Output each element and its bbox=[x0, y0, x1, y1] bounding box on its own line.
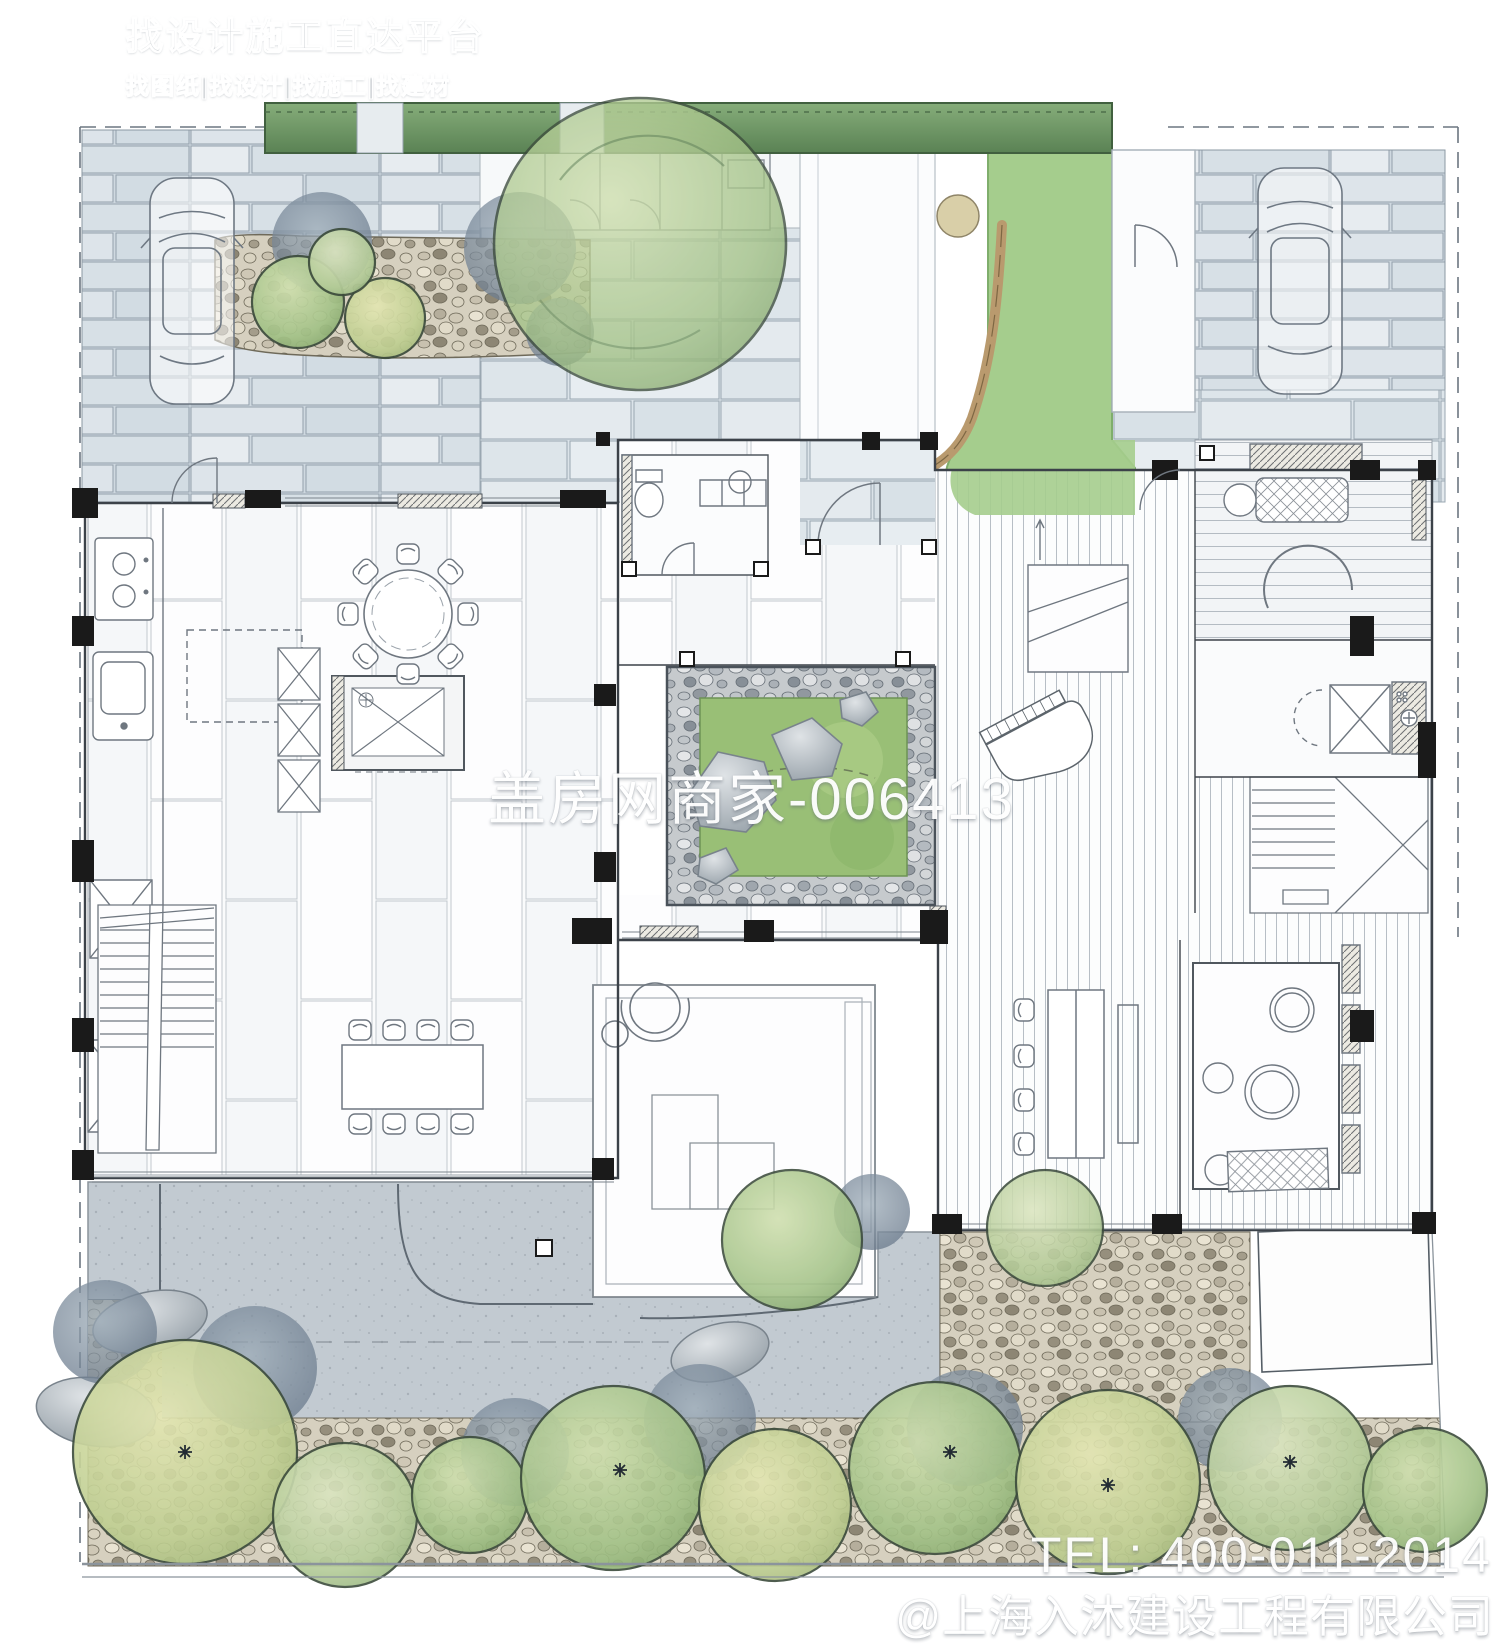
inner-courtyard bbox=[667, 667, 935, 905]
storage-cabinets bbox=[278, 648, 320, 812]
powder-room bbox=[622, 455, 768, 575]
hedge-pier bbox=[357, 103, 403, 153]
platform-logo: 找设计施工直达平台 找图纸|找设计|找施工|找建材 bbox=[22, 6, 486, 101]
tree bbox=[849, 1382, 1021, 1554]
tree bbox=[699, 1429, 851, 1581]
cabinet bbox=[1250, 444, 1362, 470]
logo-subtitle: 找图纸|找设计|找施工|找建材 bbox=[126, 67, 486, 101]
right-staircase bbox=[1250, 777, 1428, 913]
house-logo-icon bbox=[22, 6, 114, 101]
toilet bbox=[635, 483, 663, 517]
bath-mat bbox=[1227, 1148, 1328, 1191]
floor-plan-page: 找设计施工直达平台 找图纸|找设计|找施工|找建材 盖房网商家-006413 T… bbox=[0, 0, 1500, 1651]
driveway-car bbox=[141, 178, 243, 404]
toilet-tank bbox=[636, 470, 662, 482]
bath-room bbox=[1193, 945, 1360, 1192]
tree bbox=[987, 1170, 1103, 1286]
elevator-shower-box bbox=[332, 676, 464, 772]
left-staircase bbox=[98, 905, 216, 1153]
cushion bbox=[1224, 484, 1256, 516]
shrub bbox=[309, 229, 375, 295]
north-gate-door bbox=[1112, 150, 1195, 412]
tree bbox=[521, 1386, 705, 1570]
large-tree-canopy bbox=[494, 98, 786, 390]
basin bbox=[729, 471, 751, 493]
white-terrace bbox=[1258, 1224, 1432, 1372]
stepping-stone bbox=[937, 195, 979, 237]
tree bbox=[1363, 1428, 1487, 1552]
second-car bbox=[1249, 168, 1351, 394]
logo-title: 找设计施工直达平台 bbox=[126, 6, 486, 60]
tree bbox=[722, 1170, 862, 1310]
daybed bbox=[1256, 478, 1348, 522]
tree bbox=[273, 1443, 417, 1587]
tree bbox=[412, 1437, 528, 1553]
floor-plan-drawing bbox=[0, 0, 1500, 1651]
